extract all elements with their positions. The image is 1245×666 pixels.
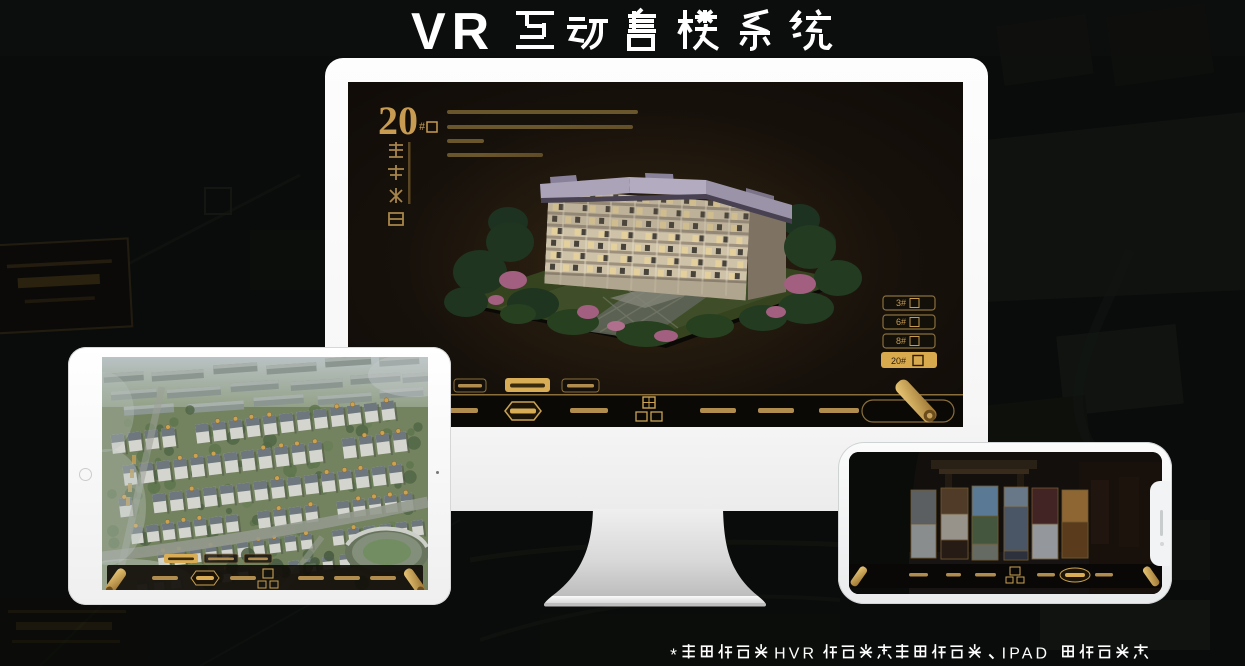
svg-text:20#: 20#: [891, 356, 906, 366]
svg-text:20: 20: [378, 98, 418, 143]
svg-text:IPAD: IPAD: [1002, 646, 1050, 663]
svg-text:VR: VR: [411, 4, 495, 56]
svg-text:*: *: [670, 645, 677, 665]
svg-text:6#: 6#: [896, 317, 906, 327]
svg-text:3#: 3#: [896, 298, 906, 308]
svg-text:#: #: [419, 119, 425, 133]
svg-text:8#: 8#: [896, 336, 906, 346]
svg-text:HVR: HVR: [774, 646, 817, 663]
